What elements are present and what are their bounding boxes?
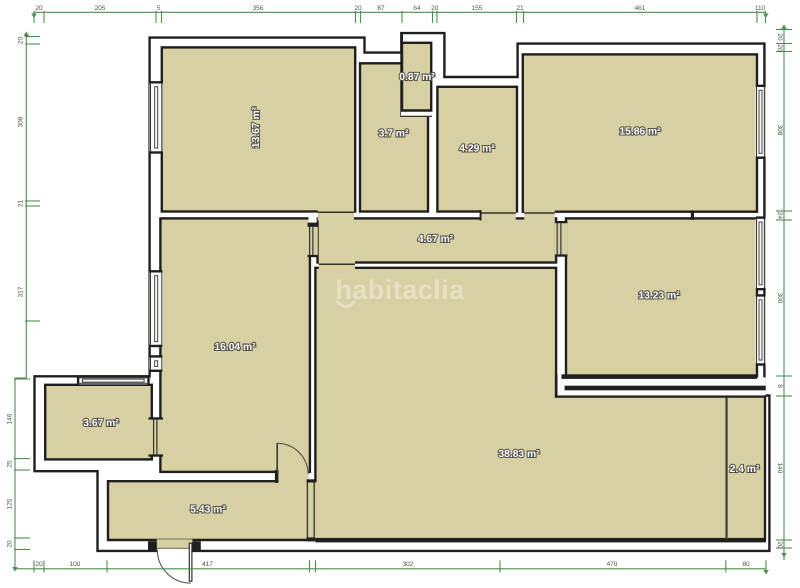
svg-text:4.29 m²: 4.29 m² [459, 144, 495, 155]
svg-text:155: 155 [472, 5, 483, 12]
svg-text:0.87 m²: 0.87 m² [399, 72, 435, 83]
svg-text:3.7 m²: 3.7 m² [379, 129, 409, 140]
svg-text:205: 205 [95, 5, 106, 12]
svg-text:302: 302 [403, 561, 414, 568]
svg-text:20: 20 [7, 540, 14, 548]
svg-text:20: 20 [776, 33, 783, 41]
svg-text:308: 308 [776, 125, 783, 136]
svg-text:20: 20 [35, 561, 43, 568]
svg-text:20: 20 [431, 5, 439, 12]
svg-text:146: 146 [7, 413, 14, 424]
svg-text:317: 317 [18, 286, 25, 297]
svg-text:20: 20 [776, 541, 783, 549]
svg-text:24: 24 [776, 212, 783, 220]
svg-text:308: 308 [18, 116, 25, 127]
svg-text:13.67 m²: 13.67 m² [251, 106, 262, 148]
svg-text:125: 125 [7, 498, 14, 509]
svg-text:21: 21 [516, 5, 524, 12]
svg-text:25: 25 [7, 460, 14, 468]
svg-text:100: 100 [70, 561, 81, 568]
svg-text:20: 20 [776, 44, 783, 52]
svg-text:15.86 m²: 15.86 m² [619, 127, 661, 138]
svg-text:417: 417 [202, 561, 213, 568]
svg-text:20: 20 [18, 37, 25, 45]
svg-text:20: 20 [354, 5, 362, 12]
svg-text:5.43 m²: 5.43 m² [190, 505, 226, 516]
svg-text:461: 461 [635, 5, 646, 12]
svg-text:3.67 m²: 3.67 m² [83, 418, 119, 429]
svg-text:8: 8 [776, 384, 783, 388]
svg-text:80: 80 [742, 561, 750, 568]
svg-text:4.67 m²: 4.67 m² [418, 234, 454, 245]
svg-text:16.04 m²: 16.04 m² [214, 342, 256, 353]
svg-text:110: 110 [755, 5, 766, 12]
svg-text:356: 356 [253, 5, 264, 12]
svg-text:140: 140 [776, 463, 783, 474]
svg-text:64: 64 [413, 5, 421, 12]
svg-text:87: 87 [377, 5, 385, 12]
svg-text:20: 20 [35, 5, 43, 12]
svg-text:13.23 m²: 13.23 m² [638, 291, 680, 302]
svg-text:21: 21 [18, 200, 25, 208]
svg-text:38.83 m²: 38.83 m² [498, 449, 540, 460]
svg-text:5: 5 [157, 5, 161, 12]
svg-text:470: 470 [607, 561, 618, 568]
svg-text:2.4 m²: 2.4 m² [730, 464, 760, 475]
svg-text:300: 300 [776, 293, 783, 304]
